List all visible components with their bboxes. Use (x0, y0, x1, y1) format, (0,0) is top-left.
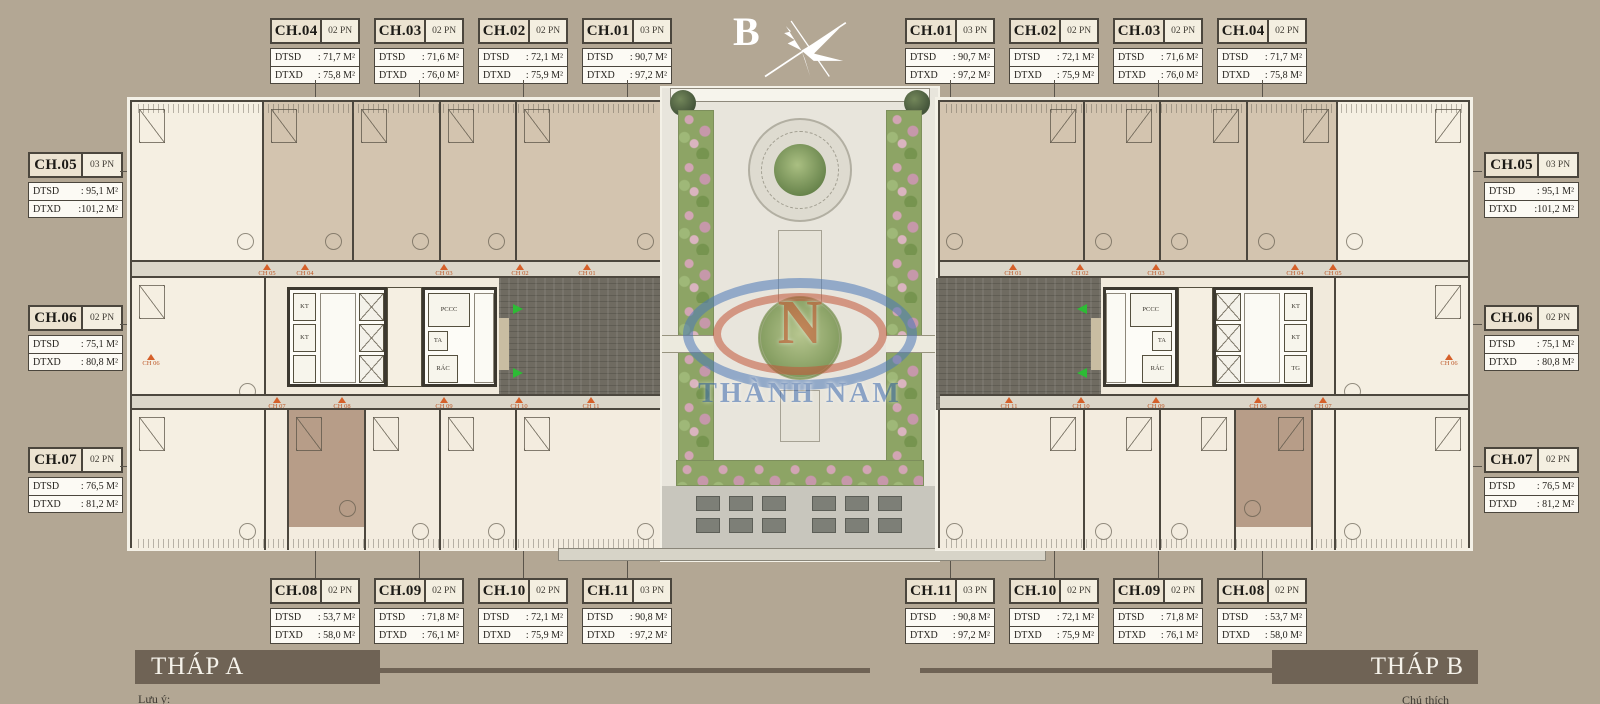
dtsd-label: DTSD (910, 52, 936, 63)
tower-b-title-bar: THÁP B (1272, 650, 1478, 684)
seating-area (662, 486, 938, 548)
unit-card: CH.11 03 PN DTSD: 90,8 M² DTXD: 97,2 M² (582, 578, 672, 644)
unit-card-header: CH.08 02 PN (1217, 578, 1307, 604)
dtxd-label: DTXD (587, 70, 615, 81)
tower-a-title: THÁP A (151, 653, 244, 681)
kt-room-label: KT (300, 335, 309, 342)
dtsd-value: : 71,6 M² (422, 52, 459, 63)
dtsd-value: : 72,1 M² (1057, 52, 1094, 63)
dtsd-label: DTSD (275, 52, 301, 63)
unit-bedrooms: 02 PN (322, 20, 358, 42)
unit-card: CH.08 02 PN DTSD: 53,7 M² DTXD: 58,0 M² (270, 578, 360, 644)
pccc-room-label: PCCC (441, 307, 458, 314)
rac-room-label: RÁC (1150, 366, 1163, 373)
entrance-canopy (670, 88, 930, 102)
corridor-unit-marker: CH 04 (288, 264, 322, 277)
corridor-unit-marker: CH 05 (1316, 264, 1350, 277)
connector-line (950, 80, 951, 101)
unit-id: CH.10 (1011, 580, 1061, 602)
dtsd-value: : 90,7 M² (630, 52, 667, 63)
corridor-upper: CH 05 CH 04 CH 03 CH 02 CH 01 (132, 260, 660, 278)
unit-bedrooms: 03 PN (957, 20, 993, 42)
tower-b-title: THÁP B (1371, 653, 1464, 681)
tower-a-floorplan: CH 05 CH 04 CH 03 CH 02 CH 01 KT KT PCCC (130, 100, 662, 548)
dtsd-label: DTSD (1014, 612, 1040, 623)
corridor-unit-marker: CH 08 (325, 397, 359, 410)
unit-bedrooms: 02 PN (426, 20, 462, 42)
unit-card-header: CH.03 02 PN (374, 18, 464, 44)
unit-card: CH.10 02 PN DTSD: 72,1 M² DTXD: 75,9 M² (478, 578, 568, 644)
corridor-lower: CH 07 CH 08 CH 09 CH 10 CH 11 (132, 394, 660, 410)
corridor-unit-marker: CH 11 (574, 397, 608, 410)
dtxd-value: : 75,9 M² (1057, 630, 1094, 641)
dtsd-value: : 90,8 M² (953, 612, 990, 623)
unit-card-header: CH.10 02 PN (478, 578, 568, 604)
balcony-strip (942, 104, 1462, 113)
kt-room-label: KT (1291, 335, 1300, 342)
highlighted-unit (289, 410, 364, 527)
unit-bedrooms: 02 PN (1269, 580, 1305, 602)
unit-bedrooms: 02 PN (1165, 20, 1201, 42)
unit-card-body: DTSD: 90,7 M² DTXD: 97,2 M² (582, 48, 672, 84)
walkway-bridge (662, 335, 714, 353)
dtsd-value: : 76,5 M² (81, 481, 118, 492)
garden-circle (758, 296, 842, 380)
stair-elevator-core: KT KT TG (1213, 287, 1313, 387)
tg-room-label: TG (1291, 366, 1300, 373)
compass: B (733, 6, 853, 84)
dtsd-label: DTSD (1222, 52, 1248, 63)
unit-card: CH.10 02 PN DTSD: 72,1 M² DTXD: 75,9 M² (1009, 578, 1099, 644)
corridor-unit-marker: CH 05 (250, 264, 284, 277)
corridor-unit-marker: CH 07 (1306, 397, 1340, 410)
unit-cards-top-right: CH.01 03 PN DTSD: 90,7 M² DTXD: 97,2 M² … (905, 18, 1307, 84)
dtxd-label: DTXD (483, 630, 511, 641)
dtsd-label: DTSD (1222, 612, 1248, 623)
connector-line (523, 549, 524, 578)
unit-id: CH.02 (1011, 20, 1061, 42)
dtxd-value: : 97,2 M² (630, 630, 667, 641)
unit-card-body: DTSD: 53,7 M² DTXD: 58,0 M² (270, 608, 360, 644)
unit-card-body: DTSD: 75,1 M² DTXD: 80,8 M² (28, 335, 123, 371)
dtxd-label: DTXD (483, 70, 511, 81)
unit-card-body: DTSD: 95,1 M² DTXD:101,2 M² (1484, 182, 1579, 218)
legend-label: Chú thích (1402, 693, 1449, 704)
unit-card-body: DTSD: 71,6 M² DTXD: 76,0 M² (1113, 48, 1203, 84)
unit-card-body: DTSD: 90,7 M² DTXD: 97,2 M² (905, 48, 995, 84)
unit-card-header: CH.04 02 PN (1217, 18, 1307, 44)
bench (878, 518, 902, 533)
dtsd-value: : 72,1 M² (526, 612, 563, 623)
unit-id: CH.02 (480, 20, 530, 42)
unit-card: CH.03 02 PN DTSD: 71,6 M² DTXD: 76,0 M² (1113, 18, 1203, 84)
dtxd-value: : 80,8 M² (1537, 357, 1574, 368)
dtxd-label: DTXD (1489, 357, 1517, 368)
corridor-lower: CH 07 CH 08 CH 09 CH 10 CH 11 (940, 394, 1468, 410)
connector-line (1262, 549, 1263, 578)
staircase (1106, 293, 1126, 383)
unit-bedrooms: 02 PN (1061, 20, 1097, 42)
elevator-shaft (359, 355, 384, 383)
connector-line (627, 80, 628, 101)
corridor-unit-marker: CH 04 (1278, 264, 1312, 277)
corridor-unit-marker: CH 03 (427, 264, 461, 277)
unit-card-header: CH.10 02 PN (1009, 578, 1099, 604)
exit-arrow-icon (1077, 304, 1087, 314)
dtxd-value: : 97,2 M² (630, 70, 667, 81)
courtyard-stairs (780, 390, 820, 442)
unit-card-header: CH.11 03 PN (905, 578, 995, 604)
corridor-unit-marker: CH 02 (1063, 264, 1097, 277)
dtxd-value: : 75,8 M² (1265, 70, 1302, 81)
dtxd-value: : 80,8 M² (81, 357, 118, 368)
stair-elevator-core: KT KT (287, 287, 387, 387)
dtsd-value: : 75,1 M² (1537, 339, 1574, 350)
unit-card-body: DTSD: 75,1 M² DTXD: 80,8 M² (1484, 335, 1579, 371)
dtxd-label: DTXD (1118, 70, 1146, 81)
dtsd-label: DTSD (379, 612, 405, 623)
unit-bedrooms: 02 PN (530, 20, 566, 42)
unit-id: CH.11 (907, 580, 957, 602)
connector-line (523, 80, 524, 101)
unit-bedrooms: 03 PN (634, 20, 670, 42)
dtsd-label: DTSD (1489, 339, 1515, 350)
dtxd-label: DTXD (1118, 630, 1146, 641)
exit-arrow-icon (513, 304, 523, 314)
unit-card: CH.09 02 PN DTSD: 71,8 M² DTXD: 76,1 M² (374, 578, 464, 644)
unit-id: CH.06 (30, 307, 83, 329)
dtsd-value: : 95,1 M² (1537, 186, 1574, 197)
compass-rose-icon (761, 14, 849, 80)
unit-card-header: CH.06 02 PN (1484, 305, 1579, 331)
dtxd-label: DTXD (1489, 499, 1517, 510)
bench (696, 518, 720, 533)
unit-card-body: DTSD: 76,5 M² DTXD: 81,2 M² (28, 477, 123, 513)
walkway-bridge (886, 335, 938, 353)
bench (729, 496, 753, 511)
apartment-band-lower (132, 410, 660, 550)
dtsd-label: DTSD (33, 186, 59, 197)
dtxd-label: DTXD (910, 630, 938, 641)
balcony-strip (138, 539, 658, 548)
apartment-band-upper (132, 102, 660, 260)
staircase (474, 293, 494, 383)
exit-arrow-icon (513, 368, 523, 378)
dtsd-value: : 72,1 M² (526, 52, 563, 63)
tower-b-floorplan: CH 05 CH 04 CH 03 CH 02 CH 01 KT KT TG P… (938, 100, 1470, 548)
connector-line (1054, 549, 1055, 578)
staircase (320, 293, 356, 383)
unit-card: CH.09 02 PN DTSD: 71,8 M² DTXD: 76,1 M² (1113, 578, 1203, 644)
dtxd-label: DTXD (910, 70, 938, 81)
dtxd-value: : 58,0 M² (1265, 630, 1302, 641)
unit-card: CH.07 02 PN DTSD: 76,5 M² DTXD: 81,2 M² (28, 447, 123, 513)
unit-id: CH.05 (1486, 154, 1539, 176)
dtxd-label: DTXD (33, 357, 61, 368)
dtxd-label: DTXD (33, 499, 61, 510)
connector-line (419, 80, 420, 101)
staircase (1244, 293, 1280, 383)
dtsd-value: : 95,1 M² (81, 186, 118, 197)
unit-bedrooms: 03 PN (634, 580, 670, 602)
dtxd-value: : 76,1 M² (1161, 630, 1198, 641)
unit-card-header: CH.05 03 PN (1484, 152, 1579, 178)
dtsd-value: : 75,1 M² (81, 339, 118, 350)
corridor-unit-marker: CH 01 (996, 264, 1030, 277)
elevator-shaft (1216, 293, 1241, 321)
unit-card-header: CH.01 03 PN (582, 18, 672, 44)
balcony-strip (942, 539, 1462, 548)
dtsd-value: : 71,8 M² (422, 612, 459, 623)
bench (762, 518, 786, 533)
unit-card: CH.07 02 PN DTSD: 76,5 M² DTXD: 81,2 M² (1484, 447, 1579, 513)
unit-card-header: CH.07 02 PN (1484, 447, 1579, 473)
corridor-unit-marker: CH 08 (1241, 397, 1275, 410)
dtxd-label: DTXD (379, 630, 407, 641)
bench (812, 496, 836, 511)
dtsd-label: DTSD (1118, 612, 1144, 623)
dtxd-value: : 81,2 M² (81, 499, 118, 510)
dtsd-label: DTSD (33, 339, 59, 350)
dtxd-value: : 75,9 M² (526, 630, 563, 641)
dtxd-value: : 75,9 M² (1057, 70, 1094, 81)
unit-card-header: CH.11 03 PN (582, 578, 672, 604)
dtxd-value: : 81,2 M² (1537, 499, 1574, 510)
unit-id: CH.07 (1486, 449, 1539, 471)
unit-cards-top-left: CH.04 02 PN DTSD: 71,7 M² DTXD: 75,8 M² … (270, 18, 672, 84)
dtsd-label: DTSD (1489, 186, 1515, 197)
dtxd-label: DTXD (587, 630, 615, 641)
garden-hedge (676, 460, 924, 486)
unit-id: CH.09 (376, 580, 426, 602)
unit-card: CH.02 02 PN DTSD: 72,1 M² DTXD: 75,9 M² (478, 18, 568, 84)
rac-room-label: RÁC (436, 366, 449, 373)
unit-bedrooms: 02 PN (83, 449, 121, 471)
elevator-shaft (359, 293, 384, 321)
corridor-unit-marker: CH 09 (427, 397, 461, 410)
unit-card: CH.01 03 PN DTSD: 90,7 M² DTXD: 97,2 M² (582, 18, 672, 84)
unit-card: CH.04 02 PN DTSD: 71,7 M² DTXD: 75,8 M² (1217, 18, 1307, 84)
dtsd-value: : 71,7 M² (1265, 52, 1302, 63)
unit-card-header: CH.03 02 PN (1113, 18, 1203, 44)
unit-card-header: CH.05 03 PN (28, 152, 123, 178)
dtxd-value: : 58,0 M² (318, 630, 355, 641)
unit-card-header: CH.01 03 PN (905, 18, 995, 44)
unit-id: CH.07 (30, 449, 83, 471)
unit-card-header: CH.02 02 PN (1009, 18, 1099, 44)
corridor-unit-marker: CH 10 (1064, 397, 1098, 410)
connector-line (419, 549, 420, 578)
corridor-unit-marker: CH 06 (1432, 354, 1466, 367)
dtxd-label: DTXD (1014, 630, 1042, 641)
dtxd-label: DTXD (379, 70, 407, 81)
corridor-unit-marker: CH 10 (502, 397, 536, 410)
unit-card-body: DTSD: 53,7 M² DTXD: 58,0 M² (1217, 608, 1307, 644)
note-label: Lưu ý: (138, 692, 170, 704)
unit-card-body: DTSD: 95,1 M² DTXD:101,2 M² (28, 182, 123, 218)
unit-bedrooms: 02 PN (1539, 449, 1577, 471)
unit-id: CH.03 (376, 20, 426, 42)
dtxd-value: : 76,0 M² (422, 70, 459, 81)
dtsd-value: : 76,5 M² (1537, 481, 1574, 492)
corridor-unit-marker: CH 03 (1139, 264, 1173, 277)
apartment-band-lower (940, 410, 1468, 550)
unit-card-header: CH.06 02 PN (28, 305, 123, 331)
unit-bedrooms: 02 PN (1269, 20, 1305, 42)
unit-card-body: DTSD: 71,7 M² DTXD: 75,8 M² (270, 48, 360, 84)
corridor-upper: CH 05 CH 04 CH 03 CH 02 CH 01 (940, 260, 1468, 278)
corridor-unit-marker: CH 01 (570, 264, 604, 277)
corridor-unit-marker: CH 11 (992, 397, 1026, 410)
unit-card-body: DTSD: 76,5 M² DTXD: 81,2 M² (1484, 477, 1579, 513)
dtxd-value: :101,2 M² (1534, 204, 1574, 215)
dtsd-value: : 90,8 M² (630, 612, 667, 623)
connector-line (315, 80, 316, 101)
unit-card: CH.06 02 PN DTSD: 75,1 M² DTXD: 80,8 M² (1484, 305, 1579, 371)
bench (696, 496, 720, 511)
dtxd-value: :101,2 M² (78, 204, 118, 215)
unit-card-body: DTSD: 90,8 M² DTXD: 97,2 M² (905, 608, 995, 644)
unit-card-body: DTSD: 72,1 M² DTXD: 75,9 M² (1009, 608, 1099, 644)
unit-id: CH.11 (584, 580, 634, 602)
unit-id: CH.10 (480, 580, 530, 602)
dtsd-value: : 90,7 M² (953, 52, 990, 63)
unit-card-header: CH.07 02 PN (28, 447, 123, 473)
dtsd-value: : 53,7 M² (1265, 612, 1302, 623)
dtxd-label: DTXD (33, 204, 61, 215)
corridor-unit-marker: CH 09 (1139, 397, 1173, 410)
unit-card-body: DTSD: 71,7 M² DTXD: 75,8 M² (1217, 48, 1307, 84)
dtsd-label: DTSD (1014, 52, 1040, 63)
unit-id: CH.01 (907, 20, 957, 42)
dtxd-label: DTXD (275, 70, 303, 81)
elevator-shaft (1216, 355, 1241, 383)
corridor-unit-marker: CH 02 (503, 264, 537, 277)
dtxd-value: : 76,0 M² (1161, 70, 1198, 81)
unit-cards-left: CH.05 03 PN DTSD: 95,1 M² DTXD:101,2 M² … (28, 152, 123, 513)
bench (812, 518, 836, 533)
dtsd-value: : 72,1 M² (1057, 612, 1094, 623)
divider-line (378, 668, 870, 673)
unit-bedrooms: 02 PN (1539, 307, 1577, 329)
unit-card-header: CH.04 02 PN (270, 18, 360, 44)
unit-id: CH.04 (1219, 20, 1269, 42)
bench (729, 518, 753, 533)
unit-card-body: DTSD: 71,8 M² DTXD: 76,1 M² (1113, 608, 1203, 644)
unit-bedrooms: 03 PN (83, 154, 121, 176)
unit-card-header: CH.02 02 PN (478, 18, 568, 44)
unit-card: CH.02 02 PN DTSD: 72,1 M² DTXD: 75,9 M² (1009, 18, 1099, 84)
unit-id: CH.08 (1219, 580, 1269, 602)
unit-card-body: DTSD: 72,1 M² DTXD: 75,9 M² (1009, 48, 1099, 84)
kt-room-label: KT (1291, 304, 1300, 311)
unit-card-body: DTSD: 71,8 M² DTXD: 76,1 M² (374, 608, 464, 644)
unit-bedrooms: 03 PN (1539, 154, 1577, 176)
bench (762, 496, 786, 511)
unit-cards-bottom-left: CH.08 02 PN DTSD: 53,7 M² DTXD: 58,0 M² … (270, 578, 672, 644)
unit-card-body: DTSD: 90,8 M² DTXD: 97,2 M² (582, 608, 672, 644)
connector-line (1158, 80, 1159, 101)
unit-card: CH.05 03 PN DTSD: 95,1 M² DTXD:101,2 M² (1484, 152, 1579, 218)
dtsd-label: DTSD (587, 52, 613, 63)
dtxd-label: DTXD (275, 630, 303, 641)
dtsd-label: DTSD (483, 52, 509, 63)
floorplan-page: B CH.04 02 PN DTSD: 71,7 M² DTXD: 75,8 M… (0, 0, 1600, 704)
unit-id: CH.08 (272, 580, 322, 602)
divider-line (920, 668, 1272, 673)
unit-card: CH.05 03 PN DTSD: 95,1 M² DTXD:101,2 M² (28, 152, 123, 218)
dtsd-label: DTSD (1118, 52, 1144, 63)
unit-bedrooms: 02 PN (426, 580, 462, 602)
dtxd-value: : 76,1 M² (422, 630, 459, 641)
ta-room-label: TA (1158, 338, 1166, 345)
dtsd-label: DTSD (910, 612, 936, 623)
dtxd-label: DTXD (1014, 70, 1042, 81)
unit-card: CH.08 02 PN DTSD: 53,7 M² DTXD: 58,0 M² (1217, 578, 1307, 644)
entrance-lobby (499, 278, 664, 410)
core-band: KT KT PCCC TA RÁC (132, 278, 660, 410)
exit-arrow-icon (1077, 368, 1087, 378)
bench (845, 518, 869, 533)
connector-line (315, 549, 316, 578)
connector-line (1054, 80, 1055, 101)
unit-cards-bottom-right: CH.11 03 PN DTSD: 90,8 M² DTXD: 97,2 M² … (905, 578, 1307, 644)
tower-a-title-bar: THÁP A (135, 650, 380, 684)
unit-bedrooms: 03 PN (957, 580, 993, 602)
dtsd-value: : 53,7 M² (318, 612, 355, 623)
unit-id: CH.01 (584, 20, 634, 42)
unit-id: CH.06 (1486, 307, 1539, 329)
dtxd-label: DTXD (1222, 630, 1250, 641)
unit-id: CH.09 (1115, 580, 1165, 602)
unit-id: CH.04 (272, 20, 322, 42)
kt-room-label: KT (300, 304, 309, 311)
dtxd-value: : 97,2 M² (953, 70, 990, 81)
dtsd-value: : 71,7 M² (318, 52, 355, 63)
unit-id: CH.03 (1115, 20, 1165, 42)
dtxd-value: : 75,9 M² (526, 70, 563, 81)
elevator-shaft (359, 324, 384, 352)
service-core: PCCC TA RÁC (422, 287, 497, 387)
bench (845, 496, 869, 511)
unit-card: CH.04 02 PN DTSD: 71,7 M² DTXD: 75,8 M² (270, 18, 360, 84)
corridor-unit-marker: CH 06 (134, 354, 168, 367)
core-band: KT KT TG PCCC TA RÁC (940, 278, 1468, 410)
dtsd-label: DTSD (587, 612, 613, 623)
ta-room-label: TA (434, 338, 442, 345)
dtxd-label: DTXD (1222, 70, 1250, 81)
unit-card-body: DTSD: 72,1 M² DTXD: 75,9 M² (478, 48, 568, 84)
dtsd-label: DTSD (483, 612, 509, 623)
unit-card-body: DTSD: 72,1 M² DTXD: 75,9 M² (478, 608, 568, 644)
corridor-unit-marker: CH 07 (260, 397, 294, 410)
entrance-lobby (936, 278, 1101, 410)
fountain-garden (774, 144, 826, 196)
bench (878, 496, 902, 511)
dtsd-label: DTSD (379, 52, 405, 63)
connector-line (1262, 80, 1263, 101)
dtsd-label: DTSD (1489, 481, 1515, 492)
elevator-shaft (1216, 324, 1241, 352)
balcony-strip (138, 104, 658, 113)
dtsd-label: DTSD (33, 481, 59, 492)
central-courtyard (662, 88, 938, 560)
unit-card: CH.03 02 PN DTSD: 71,6 M² DTXD: 76,0 M² (374, 18, 464, 84)
unit-card: CH.11 03 PN DTSD: 90,8 M² DTXD: 97,2 M² (905, 578, 995, 644)
unit-bedrooms: 02 PN (1061, 580, 1097, 602)
pccc-room-label: PCCC (1143, 307, 1160, 314)
unit-bedrooms: 02 PN (1165, 580, 1201, 602)
